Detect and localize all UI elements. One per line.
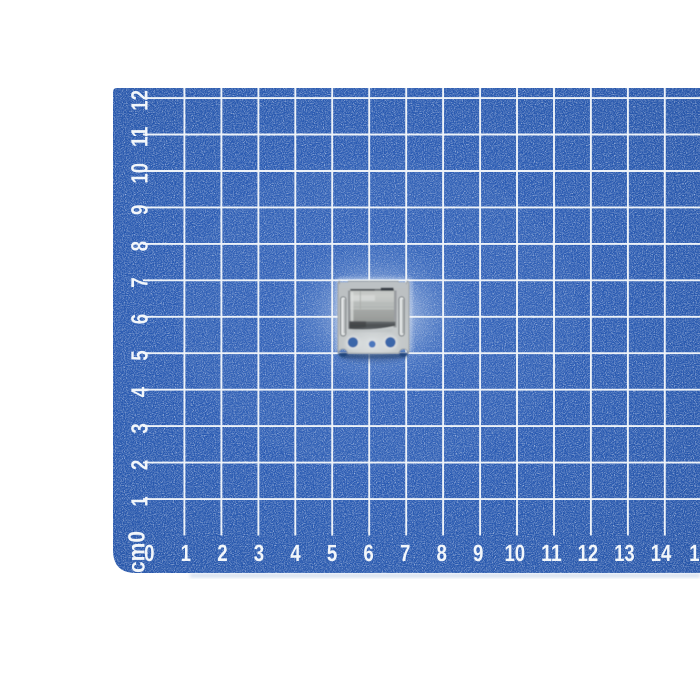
svg-text:11: 11 — [541, 540, 562, 566]
svg-text:3: 3 — [254, 540, 264, 566]
svg-text:13: 13 — [614, 540, 635, 566]
svg-text:10: 10 — [505, 540, 526, 566]
svg-text:8: 8 — [437, 540, 447, 566]
svg-text:1: 1 — [181, 540, 191, 566]
svg-text:10: 10 — [126, 163, 152, 184]
svg-text:6: 6 — [126, 314, 152, 324]
svg-text:7: 7 — [400, 540, 410, 566]
svg-text:5: 5 — [327, 540, 337, 566]
svg-text:2: 2 — [126, 460, 152, 470]
svg-text:11: 11 — [126, 127, 152, 148]
svg-text:3: 3 — [126, 423, 152, 433]
svg-text:12: 12 — [126, 90, 152, 111]
svg-text:9: 9 — [473, 540, 483, 566]
svg-text:cm0: cm0 — [124, 531, 150, 573]
svg-text:5: 5 — [126, 350, 152, 360]
svg-text:4: 4 — [290, 540, 300, 566]
svg-text:14: 14 — [651, 540, 672, 566]
svg-text:8: 8 — [126, 241, 152, 251]
svg-text:15: 15 — [689, 540, 700, 566]
svg-text:2: 2 — [217, 540, 227, 566]
svg-text:12: 12 — [578, 540, 599, 566]
svg-text:6: 6 — [363, 540, 373, 566]
svg-text:9: 9 — [126, 205, 152, 215]
svg-text:7: 7 — [126, 277, 152, 287]
svg-text:4: 4 — [126, 387, 152, 397]
svg-text:1: 1 — [126, 496, 152, 506]
